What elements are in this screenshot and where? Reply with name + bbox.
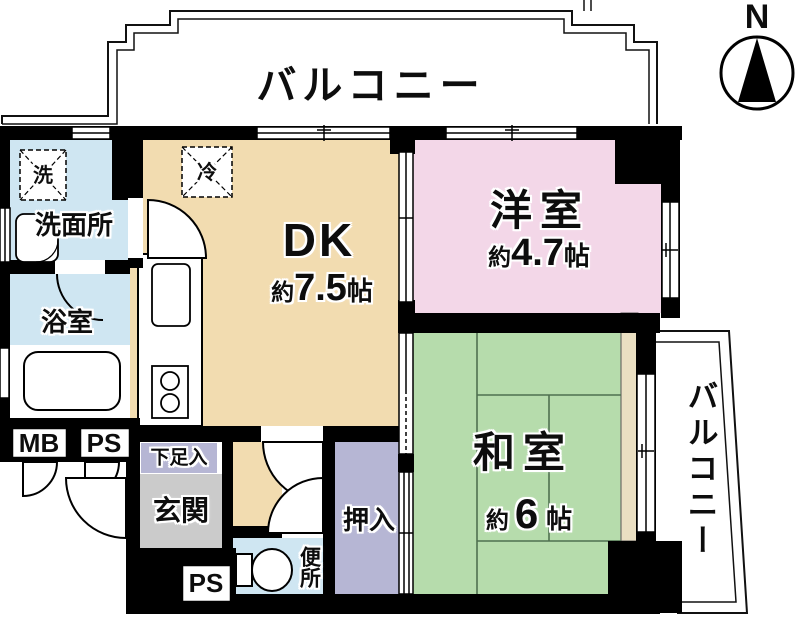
area-prefix: 約 xyxy=(488,244,511,270)
sliding-door-dk-japanese xyxy=(399,333,413,454)
toilet-tank xyxy=(236,554,252,586)
washroom-label: 洗面所 xyxy=(35,212,113,238)
area-value: 4.7 xyxy=(511,232,564,274)
shoe-cabinet-label: 下足入 xyxy=(150,449,207,468)
bathtub xyxy=(24,352,120,410)
bathroom-label: 浴室 xyxy=(41,309,93,335)
pipe-space-bottom-label: PS xyxy=(189,570,224,596)
western-room-label: 洋室 xyxy=(490,190,590,232)
kitchen-counter xyxy=(138,254,202,426)
floor-plan-canvas: バルコニー N バルコニー 洗 冷 洗面所 浴室 DK 約7.5帖 洋室 約4.… xyxy=(0,0,800,623)
area-unit: 帖 xyxy=(546,504,572,534)
compass-n-label: N xyxy=(745,0,770,34)
closet-label: 押入 xyxy=(343,507,395,533)
area-prefix: 約 xyxy=(486,507,509,533)
area-value: 7.5 xyxy=(294,267,347,309)
western-room-area-label: 約4.7帖 xyxy=(488,234,590,272)
bathroom-door-opening xyxy=(55,260,105,274)
sliding-door-dk-western xyxy=(399,152,413,302)
tatami-edge-strip xyxy=(621,313,638,541)
entrance-door-swing xyxy=(66,478,126,538)
washroom-door-opening xyxy=(128,198,143,258)
dk-label: DK xyxy=(283,217,355,263)
area-unit: 帖 xyxy=(347,276,373,306)
balcony-top-label: バルコニー xyxy=(256,66,485,106)
meter-box-door-swing xyxy=(23,462,57,496)
washing-machine-label: 洗 xyxy=(33,166,53,186)
meter-box-label: MB xyxy=(19,430,59,456)
kitchen-sink xyxy=(152,264,190,326)
area-unit: 帖 xyxy=(564,241,590,271)
pipe-duct-left xyxy=(0,348,9,398)
area-prefix: 約 xyxy=(271,279,294,305)
entrance-label: 玄関 xyxy=(153,497,209,525)
fusuma-closet-door xyxy=(399,472,413,594)
toilet-label: 便所 xyxy=(299,546,320,588)
japanese-room-label: 和室 xyxy=(473,432,573,474)
stove xyxy=(152,366,188,418)
refrigerator-label: 冷 xyxy=(197,163,217,183)
window-washroom-left xyxy=(0,208,10,262)
window-western-room-right xyxy=(662,202,679,298)
balcony-right-label: バルコニー xyxy=(685,380,716,560)
toilet-bowl xyxy=(252,549,292,591)
window-japanese-room-right xyxy=(637,374,655,532)
area-value: 6 xyxy=(515,490,538,537)
japanese-room-area-label: 約6帖 xyxy=(486,493,572,535)
compass xyxy=(721,37,793,109)
window-western-room-top xyxy=(446,125,577,141)
pipe-space-left-label: PS xyxy=(87,430,122,456)
window-top-small xyxy=(72,127,110,139)
dk-area-label: 約7.5帖 xyxy=(271,269,373,307)
window-dk xyxy=(257,125,390,141)
